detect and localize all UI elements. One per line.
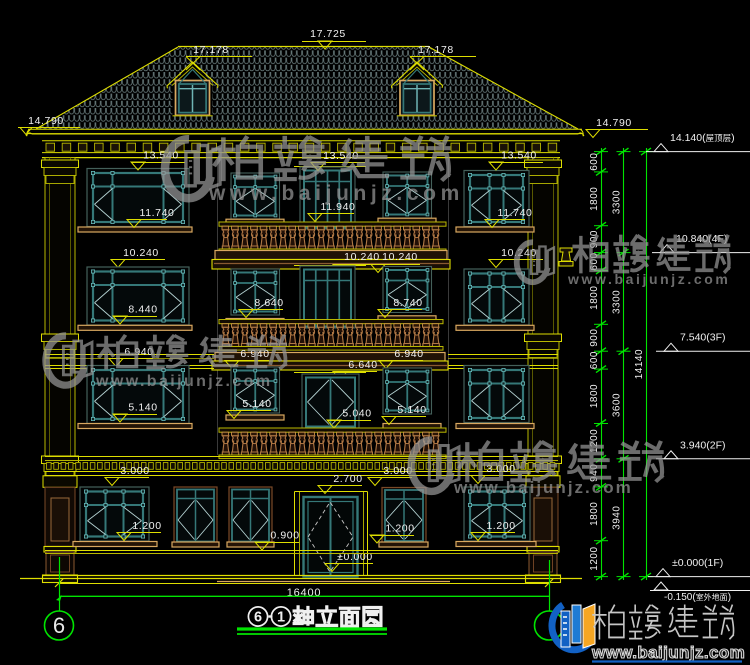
svg-text:11.740: 11.740 <box>140 207 175 219</box>
svg-text:10.240: 10.240 <box>382 251 418 263</box>
svg-text:-0.150(室外地面): -0.150(室外地面) <box>664 592 731 603</box>
svg-text:www.baijunjz.com: www.baijunjz.com <box>567 271 730 287</box>
svg-text:3600: 3600 <box>612 393 623 417</box>
svg-text:5.140: 5.140 <box>397 404 426 416</box>
svg-text:6.940: 6.940 <box>394 348 423 360</box>
svg-text:5.140: 5.140 <box>242 398 271 410</box>
svg-text:14.790: 14.790 <box>596 117 632 129</box>
svg-text:10.240: 10.240 <box>123 247 159 259</box>
svg-text:±0.000: ±0.000 <box>337 551 373 563</box>
svg-text:1800: 1800 <box>589 384 600 408</box>
svg-text:1800: 1800 <box>589 286 600 310</box>
svg-text:1800: 1800 <box>589 187 600 211</box>
svg-text:8.740: 8.740 <box>393 297 422 309</box>
svg-text:17.178: 17.178 <box>193 44 229 56</box>
svg-text:5.140: 5.140 <box>128 402 157 414</box>
svg-text:www.baijunjz.com: www.baijunjz.com <box>453 478 633 497</box>
svg-text:14.790: 14.790 <box>28 115 64 127</box>
svg-text:5.040: 5.040 <box>342 408 371 420</box>
svg-text:6: 6 <box>53 613 65 638</box>
svg-text:1: 1 <box>277 610 285 626</box>
svg-text:±0.000(1F): ±0.000(1F) <box>672 557 723 569</box>
svg-text:3940: 3940 <box>612 506 623 530</box>
svg-text:11.740: 11.740 <box>498 207 533 219</box>
svg-text:1800: 1800 <box>589 502 600 526</box>
svg-text:600: 600 <box>589 153 600 171</box>
svg-text:2.700: 2.700 <box>333 473 362 485</box>
svg-text:1.200: 1.200 <box>385 523 414 535</box>
svg-text:6.640: 6.640 <box>348 359 377 371</box>
svg-text:1.200: 1.200 <box>132 520 161 532</box>
svg-text:13.540: 13.540 <box>501 150 537 162</box>
svg-text:1200: 1200 <box>589 546 600 570</box>
svg-text:3300: 3300 <box>612 190 623 214</box>
svg-text:14140: 14140 <box>634 349 645 379</box>
svg-text:10.240: 10.240 <box>344 251 380 263</box>
svg-text:7.540(3F): 7.540(3F) <box>680 332 726 344</box>
svg-text:0.900: 0.900 <box>270 530 299 542</box>
svg-text:6: 6 <box>254 610 262 626</box>
svg-text:900: 900 <box>589 329 600 347</box>
svg-text:www.baijunjz.com: www.baijunjz.com <box>95 373 273 390</box>
svg-text:17.178: 17.178 <box>418 44 454 56</box>
svg-text:3.940(2F): 3.940(2F) <box>680 439 726 451</box>
svg-text:17.725: 17.725 <box>310 28 346 40</box>
svg-text:www.baijunjz.com: www.baijunjz.com <box>208 182 464 205</box>
svg-text:www.baijunjz.com: www.baijunjz.com <box>591 643 745 662</box>
svg-text:8.640: 8.640 <box>254 297 283 309</box>
svg-text:8.440: 8.440 <box>128 304 157 316</box>
svg-text:3.000: 3.000 <box>120 465 149 477</box>
svg-text:3300: 3300 <box>612 290 623 314</box>
svg-text:600: 600 <box>589 351 600 369</box>
svg-text:14.140(屋顶层): 14.140(屋顶层) <box>670 132 735 144</box>
svg-text:16400: 16400 <box>287 587 322 599</box>
svg-text:1.200: 1.200 <box>486 520 515 532</box>
